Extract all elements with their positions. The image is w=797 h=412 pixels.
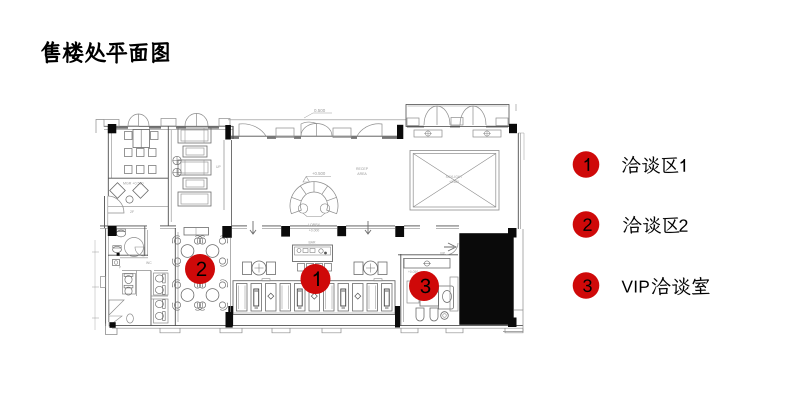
svg-text:+3.600: +3.600 bbox=[449, 180, 459, 184]
svg-text:0.500: 0.500 bbox=[314, 108, 326, 113]
svg-text:SKYLIGHT: SKYLIGHT bbox=[446, 175, 463, 179]
svg-text:+0.500: +0.500 bbox=[312, 171, 326, 176]
svg-text:P: P bbox=[119, 266, 121, 270]
svg-text:BAR: BAR bbox=[309, 241, 317, 245]
svg-text:WC: WC bbox=[146, 261, 152, 265]
svg-text:RECEP: RECEP bbox=[356, 167, 369, 171]
svg-text:MGR +0.500: MGR +0.500 bbox=[123, 182, 143, 186]
svg-text:UP: UP bbox=[216, 165, 221, 169]
svg-text:LOBBY: LOBBY bbox=[308, 223, 321, 227]
svg-text:+0.000: +0.000 bbox=[309, 229, 320, 233]
svg-text:AREA: AREA bbox=[357, 172, 367, 176]
